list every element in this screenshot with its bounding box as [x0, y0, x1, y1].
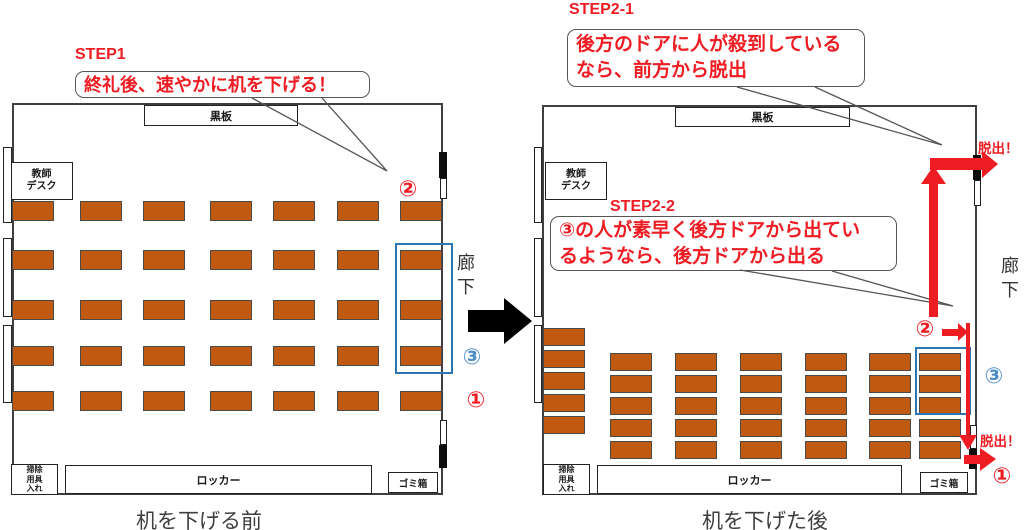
- rear-door-right: [970, 425, 977, 449]
- desk: [12, 391, 54, 411]
- desk: [610, 419, 652, 437]
- locker-right-label: ロッカー: [728, 472, 772, 488]
- cleaning-storage-left: 掃除 用具 入れ: [11, 464, 58, 495]
- step1-bubble-text: 終礼後、速やかに机を下げる！: [84, 72, 361, 98]
- evacuation-diagram: 黒板 教師 デスク ロッカー 掃除 用具 入れ ゴミ箱 STEP1 終礼後、速や…: [0, 0, 1024, 530]
- window-right-1: [534, 147, 542, 223]
- step2-2-bubble-line2: るようなら、後方ドアから出る: [559, 244, 888, 270]
- marker-1-left: ①: [467, 389, 486, 411]
- desk: [543, 394, 585, 412]
- desk: [143, 346, 185, 366]
- desk: [12, 346, 54, 366]
- marker-2-left: ②: [399, 178, 418, 200]
- desk: [543, 416, 585, 434]
- desk: [80, 346, 122, 366]
- window-left-1: [3, 147, 12, 223]
- front-door-left-black: [439, 152, 447, 178]
- highlight-column-right: [915, 347, 971, 415]
- locker-left-label: ロッカー: [197, 472, 241, 488]
- front-door-left: [440, 178, 447, 199]
- teacher-desk-left-line2: デスク: [27, 181, 57, 192]
- desk: [610, 397, 652, 415]
- trash-left: ゴミ箱: [388, 472, 438, 493]
- step2-2-title: STEP2-2: [610, 198, 675, 216]
- desk: [273, 346, 315, 366]
- desk: [805, 441, 847, 459]
- desk: [400, 391, 442, 411]
- locker-left: ロッカー: [65, 465, 372, 494]
- window-left-3: [3, 325, 12, 403]
- desk: [740, 353, 782, 371]
- window-right-3: [534, 325, 542, 403]
- desk: [869, 375, 911, 393]
- desk: [805, 397, 847, 415]
- teacher-desk-right-line1: 教師: [566, 169, 586, 180]
- desk: [675, 441, 717, 459]
- escape-label-top: 脱出！: [978, 137, 1019, 157]
- desk: [12, 300, 54, 320]
- teacher-desk-right: 教師 デスク: [545, 162, 607, 200]
- desk: [80, 250, 122, 270]
- front-door-right: [974, 180, 981, 206]
- desk: [610, 353, 652, 371]
- rear-door-left-black: [439, 445, 447, 468]
- marker-3-right: ③: [985, 365, 1004, 387]
- rear-door-right-black: [969, 449, 977, 469]
- marker-2-right: ②: [916, 318, 935, 340]
- caption-right: 机を下げた後: [665, 505, 865, 530]
- escape-label-bottom: 脱出！: [980, 430, 1021, 450]
- desk: [919, 419, 961, 437]
- desk: [210, 300, 252, 320]
- desk: [740, 441, 782, 459]
- desk: [543, 372, 585, 390]
- marker-1-right: ①: [993, 465, 1012, 487]
- desk: [337, 391, 379, 411]
- cleaning-left-1: 掃除: [27, 465, 43, 474]
- window-left-2: [3, 238, 12, 317]
- locker-right: ロッカー: [597, 465, 902, 494]
- desk: [610, 441, 652, 459]
- desk: [337, 300, 379, 320]
- desk: [210, 250, 252, 270]
- desk: [869, 441, 911, 459]
- step2-1-bubble-line2: なら、前方から脱出: [576, 58, 856, 84]
- trash-right: ゴミ箱: [920, 472, 968, 493]
- teacher-desk-right-line2: デスク: [561, 181, 591, 192]
- desk: [675, 419, 717, 437]
- blackboard-right-label: 黒板: [752, 109, 774, 125]
- desk: [740, 375, 782, 393]
- desk: [273, 391, 315, 411]
- desk: [80, 300, 122, 320]
- highlight-column-left: [395, 243, 453, 374]
- desk: [337, 250, 379, 270]
- corridor-label-right: 廊下: [1000, 254, 1020, 302]
- cleaning-right-1: 掃除: [559, 465, 575, 474]
- cleaning-storage-right: 掃除 用具 入れ: [543, 464, 590, 495]
- cleaning-right-3: 入れ: [559, 484, 575, 493]
- desk: [543, 350, 585, 368]
- desk: [543, 328, 585, 346]
- step2-1-title: STEP2-1: [569, 1, 634, 19]
- corridor-label-left: 廊下: [456, 251, 476, 299]
- desk: [869, 397, 911, 415]
- step2-1-bubble-line1: 後方のドアに人が殺到している: [576, 32, 856, 58]
- desk: [337, 346, 379, 366]
- desk: [869, 419, 911, 437]
- desk: [919, 441, 961, 459]
- teacher-desk-left-line1: 教師: [32, 169, 52, 180]
- classroom-before: [12, 103, 443, 495]
- desk: [273, 250, 315, 270]
- step2-2-bubble: ③の人が素早く後方ドアから出てい るようなら、後方ドアから出る: [550, 216, 897, 271]
- desk: [80, 391, 122, 411]
- desk: [805, 353, 847, 371]
- rear-door-left: [440, 420, 447, 445]
- step1-bubble: 終礼後、速やかに机を下げる！: [75, 71, 370, 98]
- step2-2-bubble-line1: ③の人が素早く後方ドアから出てい: [559, 218, 888, 244]
- desk: [143, 250, 185, 270]
- desk: [143, 300, 185, 320]
- desk: [80, 201, 122, 221]
- step2-1-bubble: 後方のドアに人が殺到している なら、前方から脱出: [567, 29, 865, 87]
- desk: [675, 353, 717, 371]
- blackboard-left-label: 黒板: [210, 108, 232, 124]
- desk: [143, 201, 185, 221]
- cleaning-right-2: 用具: [559, 475, 575, 484]
- desk: [210, 346, 252, 366]
- desk: [869, 353, 911, 371]
- front-door-right-black: [973, 155, 981, 180]
- desk: [12, 250, 54, 270]
- desk: [675, 375, 717, 393]
- desk: [143, 391, 185, 411]
- desk: [675, 397, 717, 415]
- trash-right-label: ゴミ箱: [930, 476, 959, 490]
- desk: [805, 419, 847, 437]
- desk: [273, 201, 315, 221]
- desk: [740, 397, 782, 415]
- transition-arrow: [468, 298, 532, 344]
- desk: [12, 201, 54, 221]
- cleaning-left-3: 入れ: [27, 484, 43, 493]
- step1-title: STEP1: [75, 46, 126, 64]
- trash-left-label: ゴミ箱: [399, 476, 428, 490]
- blackboard-right: 黒板: [675, 107, 850, 127]
- window-right-2: [534, 238, 542, 317]
- desk: [273, 300, 315, 320]
- blackboard-left: 黒板: [144, 105, 298, 126]
- desk: [337, 201, 379, 221]
- caption-left: 机を下げる前: [99, 505, 299, 530]
- desk: [400, 201, 442, 221]
- desk: [210, 391, 252, 411]
- desk: [740, 419, 782, 437]
- teacher-desk-left: 教師 デスク: [10, 162, 73, 200]
- desk: [610, 375, 652, 393]
- desk: [210, 201, 252, 221]
- cleaning-left-2: 用具: [27, 475, 43, 484]
- desk: [805, 375, 847, 393]
- marker-3-left: ③: [463, 346, 482, 368]
